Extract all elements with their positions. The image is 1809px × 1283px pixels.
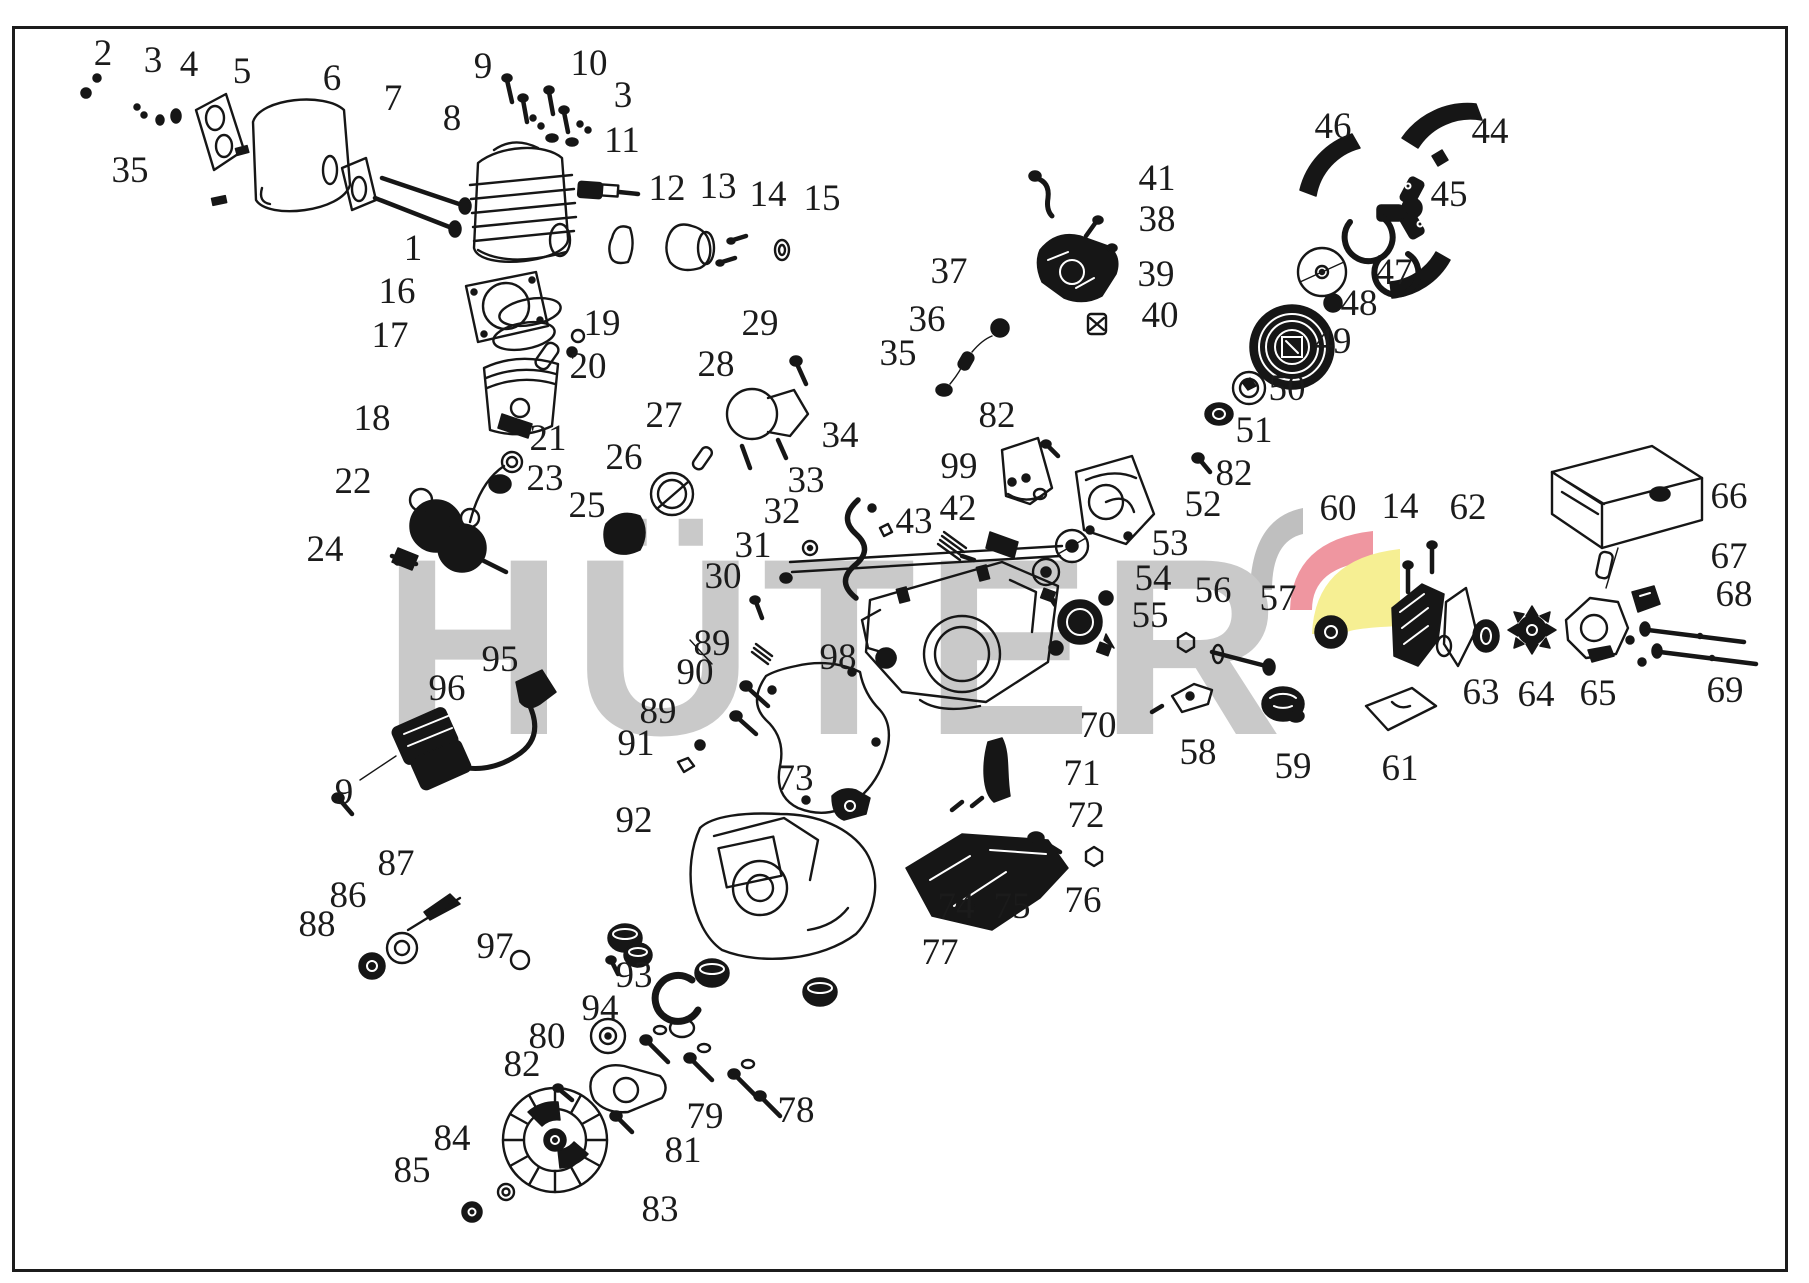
leader-line-c14a [740, 213, 756, 235]
part-number-c58: 58 [1180, 731, 1217, 774]
part-number-c37: 37 [931, 250, 968, 293]
part-number-c64: 64 [1518, 673, 1555, 716]
leader-line-c8 [420, 137, 443, 180]
leader-line-c84 [470, 1157, 504, 1190]
part-number-c69: 69 [1707, 669, 1744, 712]
leader-line-c34 [848, 454, 872, 505]
part-number-c76: 76 [1065, 879, 1102, 922]
leader-line-c16 [420, 295, 466, 300]
part-number-c99: 99 [941, 445, 978, 488]
leader-line-c89a [728, 662, 757, 692]
part-number-c90: 90 [677, 651, 714, 694]
parts-diagram: HÜTER [0, 0, 1809, 1283]
leader-line-c82a [1020, 432, 1048, 450]
part-number-c33: 33 [788, 459, 825, 502]
leader-line-c87 [414, 882, 436, 903]
leader-line-c91 [659, 755, 682, 765]
part-number-c93: 93 [616, 954, 653, 997]
part-number-c88: 88 [299, 903, 336, 946]
leader-line-c37 [967, 290, 1000, 322]
leader-line-c51 [1217, 415, 1231, 421]
leader-line-c56 [1185, 609, 1203, 642]
leader-line-c13 [695, 205, 707, 225]
part-number-c11: 11 [604, 119, 640, 162]
leader-line-c10 [530, 82, 567, 110]
leader-line-c96 [432, 707, 441, 735]
part-number-c82b: 82 [1216, 452, 1253, 495]
leader-line-c97 [516, 958, 518, 959]
leader-line-c4 [176, 83, 184, 112]
leader-line-c40 [1100, 319, 1137, 322]
leader-line-c98 [818, 676, 830, 700]
part-number-c97: 97 [477, 925, 514, 968]
part-number-c84: 84 [434, 1117, 471, 1160]
part-number-c40: 40 [1142, 294, 1179, 337]
part-number-c60: 60 [1320, 487, 1357, 530]
leader-line-c93 [657, 989, 668, 995]
part-number-c81: 81 [665, 1129, 702, 1172]
leader-line-c62 [1456, 526, 1466, 597]
part-number-c20: 20 [570, 345, 607, 388]
part-number-c77: 77 [922, 931, 959, 974]
leader-line-c89b [681, 728, 705, 743]
leader-line-c82b [1204, 463, 1211, 466]
part-number-c38: 38 [1139, 198, 1176, 241]
leader-line-c35b [920, 372, 940, 388]
part-number-c98: 98 [820, 636, 857, 679]
part-number-c92: 92 [616, 799, 653, 842]
leader-line-c47 [1344, 273, 1371, 274]
leader-line-c81 [620, 1122, 660, 1141]
leader-line-c30 [746, 593, 756, 600]
part-number-c70: 70 [1080, 704, 1117, 747]
part-number-c9a: 9 [474, 45, 493, 88]
leader-line-c78 [764, 1096, 773, 1101]
leader-line-c83 [600, 1166, 637, 1194]
part-number-c91: 91 [618, 722, 655, 765]
leader-line-c85 [435, 1188, 468, 1210]
part-number-c95: 95 [482, 638, 519, 681]
leader-line-c52 [1137, 505, 1180, 506]
part-number-c57: 57 [1260, 577, 1297, 620]
part-number-c27: 27 [646, 394, 683, 437]
part-number-c22: 22 [335, 460, 372, 503]
leader-line-c43 [934, 540, 945, 550]
leader-line-c31 [771, 564, 782, 575]
leader-line-c20 [556, 360, 565, 362]
part-number-c26: 26 [606, 436, 643, 479]
part-number-c36: 36 [909, 298, 946, 341]
part-number-c51: 51 [1236, 409, 1273, 452]
leader-line-c36 [943, 338, 962, 358]
part-number-c65: 65 [1580, 672, 1617, 715]
leader-line-c67 [1620, 561, 1706, 572]
part-number-c13: 13 [700, 165, 737, 208]
leader-line-c57 [1235, 617, 1265, 655]
leader-line-c3a [142, 79, 148, 102]
part-number-c50: 50 [1269, 367, 1306, 410]
leader-line-c25 [608, 524, 618, 532]
leader-line-c90 [713, 691, 747, 722]
leader-line-c27 [683, 434, 700, 450]
part-number-c3b: 3 [614, 74, 633, 117]
part-number-c66: 66 [1711, 475, 1748, 518]
part-number-c85: 85 [394, 1149, 431, 1192]
leader-line-c46 [1334, 145, 1340, 212]
leader-line-c14b [1402, 525, 1408, 566]
part-number-c3a: 3 [144, 39, 163, 82]
part-number-c14b: 14 [1382, 485, 1419, 528]
leader-line-c11 [600, 159, 613, 182]
leader-line-c24 [348, 554, 396, 559]
part-number-c74: 74 [938, 885, 975, 928]
leader-line-c86 [366, 914, 398, 943]
leader-line-c26 [642, 476, 655, 488]
part-number-c7: 7 [384, 77, 403, 120]
part-number-c75: 75 [994, 885, 1031, 928]
part-number-c43: 43 [896, 500, 933, 543]
leader-line-c54 [1061, 571, 1130, 578]
leader-line-c9a [496, 77, 512, 88]
leader-line-c21 [518, 455, 525, 460]
leader-line-c88 [340, 942, 368, 962]
part-number-c25: 25 [569, 484, 606, 527]
part-number-c28: 28 [698, 343, 735, 386]
leader-line-c73 [818, 790, 846, 803]
leader-line-c95 [519, 678, 528, 686]
leader-line-c92 [647, 839, 692, 900]
part-number-c16: 16 [379, 270, 416, 313]
part-number-c15: 15 [804, 177, 841, 220]
leader-line-c50 [1247, 387, 1264, 388]
leader-line-c18 [395, 422, 470, 428]
leader-line-c79 [654, 1062, 690, 1101]
part-number-c1: 1 [404, 227, 423, 270]
leader-line-c72 [1000, 808, 1063, 815]
part-number-c55: 55 [1132, 594, 1169, 637]
part-number-c56: 56 [1195, 569, 1232, 612]
leader-line-c41 [1048, 181, 1134, 184]
part-number-c78: 78 [778, 1089, 815, 1132]
part-number-c34: 34 [822, 414, 859, 457]
leader-line-c45 [1405, 200, 1426, 203]
part-number-c4: 4 [180, 43, 199, 86]
leader-line-c22 [376, 490, 430, 505]
leader-line-c23 [508, 481, 522, 482]
part-number-c82c: 82 [504, 1043, 541, 1086]
part-number-c9b: 9 [335, 771, 354, 814]
part-number-c10: 10 [571, 42, 608, 85]
leader-line-c99 [982, 474, 1002, 480]
leader-line-c17 [413, 318, 500, 333]
part-number-c24: 24 [307, 528, 344, 571]
part-number-c71: 71 [1064, 752, 1101, 795]
part-number-c72: 72 [1068, 794, 1105, 837]
part-number-c45: 45 [1431, 173, 1468, 216]
leader-line-c68 [1660, 598, 1711, 602]
part-number-c73: 73 [777, 757, 814, 800]
part-number-c23: 23 [527, 457, 564, 500]
part-number-c12: 12 [649, 167, 686, 210]
part-number-c49: 49 [1315, 320, 1352, 363]
part-number-c5: 5 [233, 50, 252, 93]
part-number-c59: 59 [1275, 745, 1312, 788]
part-number-c63: 63 [1463, 671, 1500, 714]
leader-line-c35a [153, 180, 212, 200]
part-number-c94: 94 [582, 987, 619, 1030]
leader-line-c82c [545, 1083, 558, 1092]
leader-line-c15 [786, 217, 807, 242]
part-number-c87: 87 [378, 842, 415, 885]
leader-line-c39 [1092, 277, 1133, 280]
leader-line-c55 [1097, 619, 1127, 622]
part-number-c35a: 35 [112, 149, 149, 192]
part-number-c62: 62 [1450, 486, 1487, 529]
part-number-c48: 48 [1341, 282, 1378, 325]
part-number-c41: 41 [1139, 157, 1176, 200]
part-number-c19: 19 [584, 302, 621, 345]
leader-line-c12 [630, 207, 652, 232]
leader-line-c42 [981, 525, 1000, 537]
part-number-c14a: 14 [750, 173, 787, 216]
part-number-c47: 47 [1376, 251, 1413, 294]
part-number-c17: 17 [372, 314, 409, 357]
leader-line-c29 [777, 342, 797, 362]
part-number-c21: 21 [530, 417, 567, 460]
part-number-c46: 46 [1315, 105, 1352, 148]
part-number-c96: 96 [429, 667, 466, 710]
leader-line-c1 [426, 254, 492, 272]
part-number-c44: 44 [1472, 110, 1509, 153]
leader-line-c60 [1331, 527, 1337, 616]
part-number-c61: 61 [1382, 747, 1419, 790]
part-number-c6: 6 [323, 57, 342, 100]
leader-line-c49 [1292, 345, 1310, 347]
leader-line-c5 [212, 90, 232, 125]
leader-line-c70 [1000, 682, 1075, 716]
leader-lines-layer [0, 0, 1809, 1283]
part-number-c2: 2 [94, 32, 113, 75]
leader-line-c80 [568, 1055, 600, 1080]
leader-line-c7 [358, 117, 383, 162]
part-number-c82a: 82 [979, 394, 1016, 437]
axis-line [408, 558, 1190, 756]
leader-line-c38 [1086, 228, 1134, 242]
part-number-c29: 29 [742, 302, 779, 345]
part-number-c83: 83 [642, 1188, 679, 1231]
part-number-c67: 67 [1711, 535, 1748, 578]
part-number-c18: 18 [354, 397, 391, 440]
leader-line-c33 [827, 499, 852, 520]
leader-line-c53 [1088, 545, 1147, 546]
part-number-c8: 8 [443, 97, 462, 140]
part-number-c42: 42 [940, 487, 977, 530]
leader-line-c6 [300, 91, 319, 108]
part-number-c68: 68 [1716, 573, 1753, 616]
part-number-c39: 39 [1138, 253, 1175, 296]
leader-line-c71 [1012, 776, 1059, 778]
